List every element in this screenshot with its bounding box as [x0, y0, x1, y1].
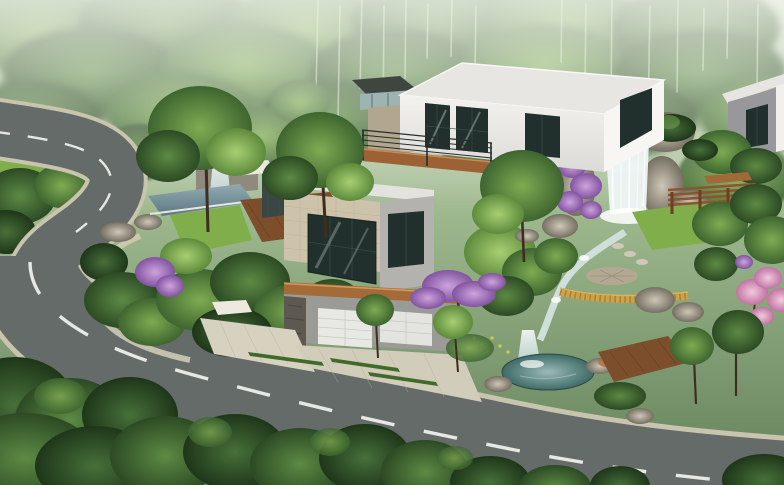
flower	[506, 350, 509, 353]
tree-canopy	[136, 130, 200, 182]
tree-canopy	[356, 294, 394, 326]
stream-cascade	[579, 255, 589, 261]
lilac-blossom-canopy	[478, 273, 506, 291]
rock	[484, 376, 512, 392]
stream-cascade	[551, 297, 561, 303]
rock	[542, 214, 578, 238]
flower	[498, 344, 501, 347]
stepping-stone	[624, 251, 636, 257]
villa-landscape-illustration	[0, 0, 784, 485]
bush-highlight	[437, 446, 473, 470]
rendering-canvas	[0, 0, 784, 485]
tree-canopy	[670, 327, 714, 365]
bougainvillea	[580, 201, 602, 219]
rock	[100, 222, 136, 242]
rock	[515, 229, 539, 243]
rock	[134, 214, 162, 230]
bonsai-pine	[682, 139, 718, 161]
flower	[490, 336, 493, 339]
tree-canopy	[206, 128, 266, 176]
tree-trunk	[206, 160, 208, 232]
bush-highlight	[34, 378, 86, 414]
shrub	[594, 382, 646, 410]
purple-blossom	[735, 255, 753, 269]
pink-blossom	[754, 267, 782, 289]
tree-canopy	[472, 194, 524, 234]
tree-canopy	[712, 310, 764, 354]
tree-canopy	[433, 305, 473, 339]
bush-highlight	[188, 417, 232, 447]
lilac-blossom-canopy	[410, 287, 446, 309]
stepping-stone	[612, 243, 624, 249]
shrub	[534, 238, 578, 274]
bush-highlight	[310, 428, 350, 456]
rock	[626, 408, 654, 424]
tree-canopy	[262, 156, 318, 200]
purple-blossom-shrub	[156, 275, 184, 297]
stepping-stone	[636, 259, 648, 265]
rock	[635, 287, 675, 313]
pond-foam	[520, 360, 544, 368]
tree-canopy	[694, 247, 738, 281]
neighbor-front-wall	[776, 84, 784, 152]
tree-canopy	[326, 163, 374, 201]
garden-pond	[502, 354, 594, 390]
rock	[672, 302, 704, 322]
